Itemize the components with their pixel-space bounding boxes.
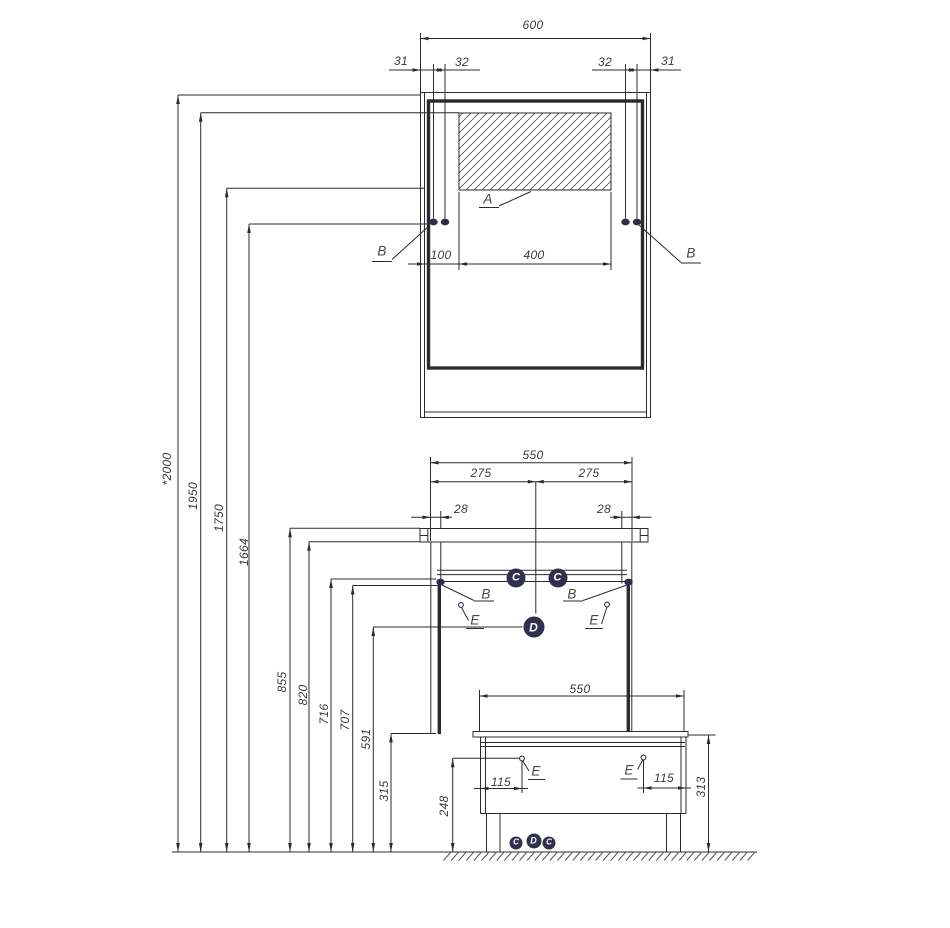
dim-side-inset-right: 31	[661, 54, 675, 68]
bench-dimension-lines	[474, 690, 716, 852]
badge-c-ground-left: C	[510, 836, 523, 849]
drawing-linework	[0, 0, 950, 928]
dim-vanity-wall-right: 28	[597, 502, 611, 516]
callout-e-vanity-right: E	[589, 613, 598, 628]
badge-c-vanity-right: C	[548, 568, 567, 587]
vanity-dimension-lines	[411, 457, 652, 629]
height-stack-arrowheads	[176, 95, 454, 852]
badge-d-vanity: D	[523, 617, 544, 638]
dim-bench-inset-left: 115	[491, 775, 511, 789]
callout-b-vanity-left: B	[481, 587, 490, 602]
badge-c-vanity-left: C	[507, 568, 526, 587]
dim-hole-span: 400	[524, 248, 545, 262]
mounting-zone-a-hatch	[459, 113, 611, 190]
dim-height-1750: 1750	[212, 504, 226, 532]
dim-height-707: 707	[338, 710, 352, 731]
badge-c-ground-right: C	[543, 836, 556, 849]
dim-height-1664: 1664	[237, 538, 251, 566]
dim-hole-offset-right: 32	[598, 55, 612, 69]
callout-e-bench-right: E	[624, 763, 633, 778]
mirror-cabinet-fasteners	[429, 219, 641, 226]
callout-a-label: A	[483, 192, 492, 207]
dim-side-inset-left: 31	[394, 54, 408, 68]
bench-outline	[473, 732, 688, 853]
dim-vanity-width: 550	[523, 448, 544, 462]
dim-height-820: 820	[296, 685, 310, 706]
callout-e-bench-left: E	[531, 764, 540, 779]
dim-overall-width: 600	[523, 18, 544, 32]
dim-vanity-wall-left: 28	[454, 502, 468, 516]
dim-hole-offset-left: 32	[455, 55, 469, 69]
dim-height-716: 716	[317, 704, 331, 725]
dim-height-2000: *2000	[160, 453, 174, 486]
dim-height-855: 855	[275, 672, 289, 693]
dim-vanity-half-right: 275	[579, 466, 600, 480]
callout-b-upper-right: B	[686, 246, 695, 261]
callout-b-upper-left: B	[377, 244, 386, 259]
dim-vanity-half-left: 275	[471, 466, 492, 480]
dim-height-591: 591	[359, 729, 373, 750]
installation-drawing: 600 31 32 32 31 100 400 A B B *2000 1950…	[0, 0, 950, 928]
dim-bench-inset-right: 115	[654, 771, 674, 785]
bench-fasteners	[520, 755, 646, 761]
bench-arrowheads	[480, 694, 711, 852]
callout-e-vanity-left: E	[470, 613, 479, 628]
dim-bench-width: 550	[570, 682, 591, 696]
dim-height-1950: 1950	[186, 482, 200, 510]
ground-hatch	[444, 852, 756, 861]
dim-hole-inset: 100	[431, 248, 452, 262]
callout-b-vanity-right: B	[567, 587, 576, 602]
dim-height-315: 315	[377, 781, 391, 802]
dim-height-248: 248	[437, 796, 451, 817]
dim-height-313: 313	[694, 777, 708, 798]
badge-d-ground: D	[526, 833, 541, 848]
